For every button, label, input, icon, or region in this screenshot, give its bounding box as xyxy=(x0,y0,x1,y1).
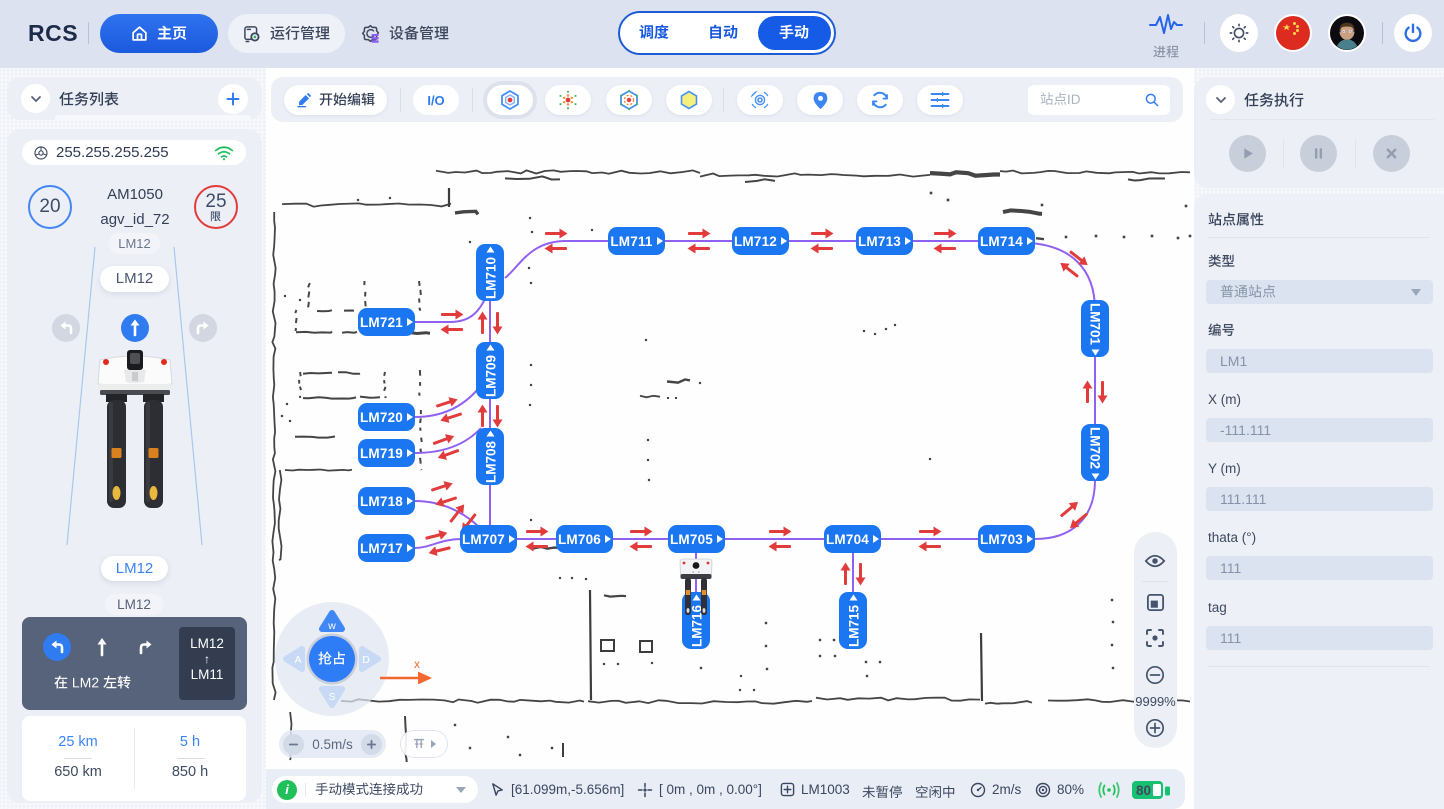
svg-text:w: w xyxy=(327,620,336,632)
svg-text:A: A xyxy=(294,654,301,666)
svg-text:D: D xyxy=(362,654,370,666)
svg-text:x: x xyxy=(414,658,420,671)
svg-text:S: S xyxy=(328,691,335,703)
svg-text:80: 80 xyxy=(1136,783,1151,798)
